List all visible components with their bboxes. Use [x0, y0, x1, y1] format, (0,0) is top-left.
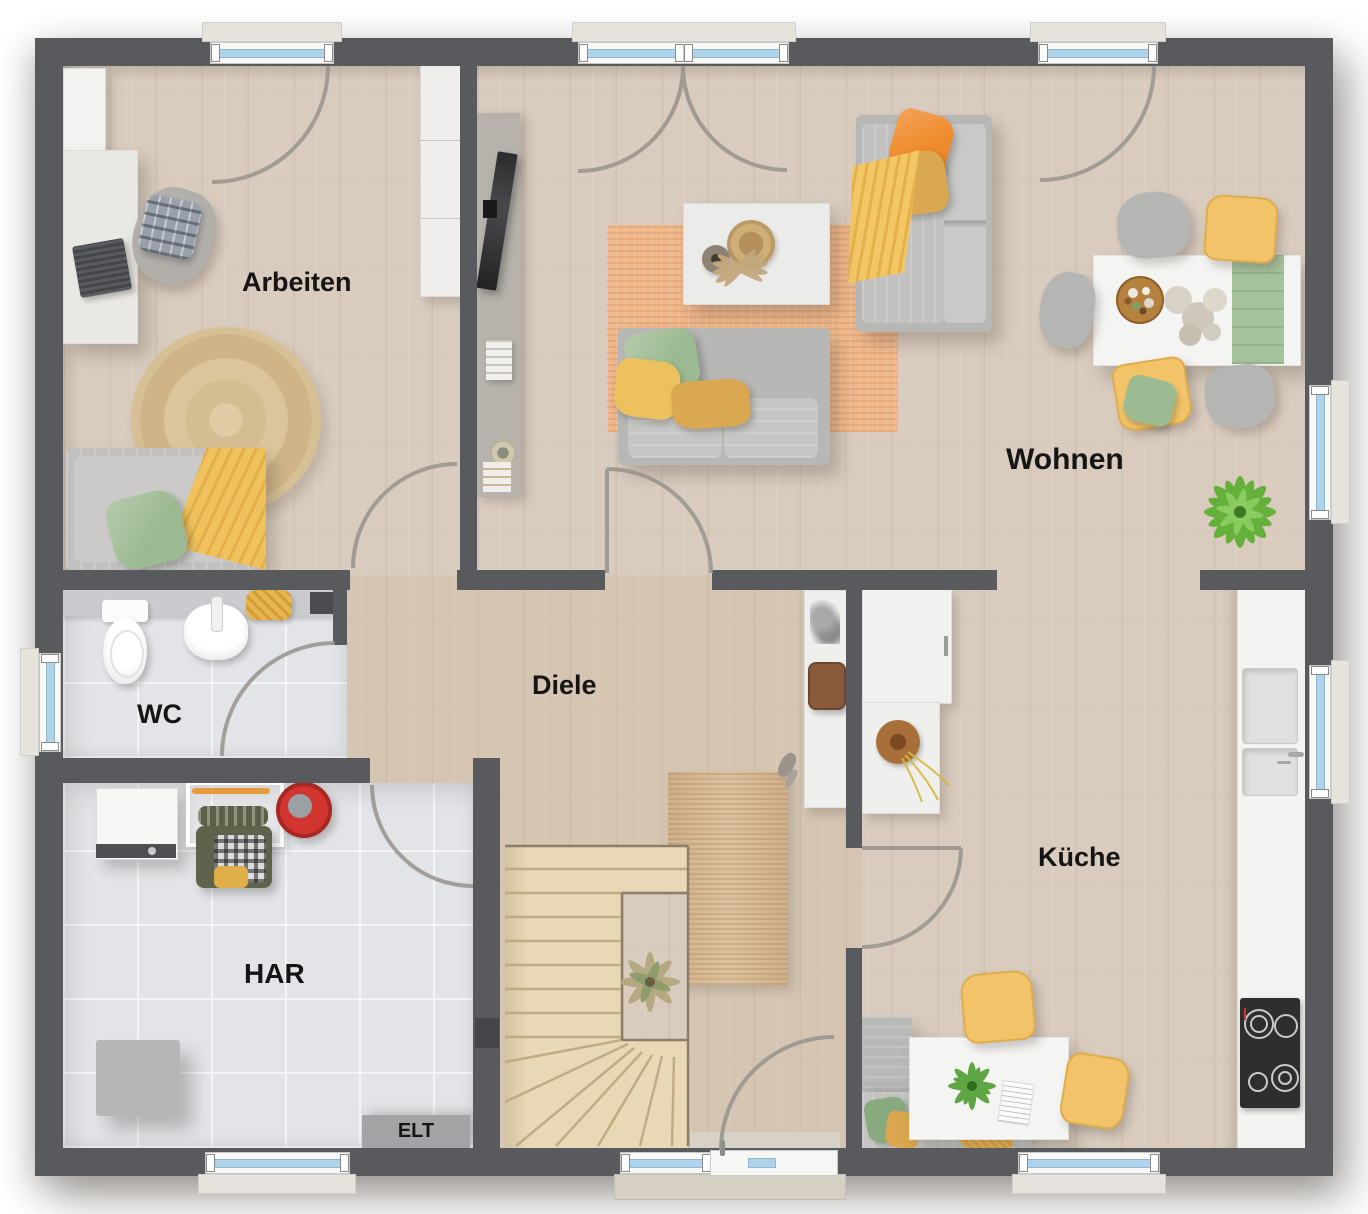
- entry-sidelight: [620, 1152, 712, 1174]
- wc-faucet: [211, 596, 223, 632]
- stair-opening-floor: [622, 893, 688, 1040]
- laptop: [72, 238, 132, 298]
- office-cabinet-north: [63, 68, 106, 154]
- window-arbeiten-top: [210, 42, 334, 64]
- tv-mount: [483, 200, 497, 218]
- handbag: [808, 662, 846, 710]
- room-label-kueche: Küche: [1038, 842, 1121, 873]
- terrace-door-wohnen: [1038, 42, 1158, 64]
- shelf-books: [486, 340, 512, 380]
- kitchen-chair-yellow-right: [1058, 1050, 1132, 1131]
- kitchen-sink-basin-1: [1242, 668, 1298, 744]
- french-door-right: [683, 42, 789, 64]
- wall-mid-stub-right: [1200, 570, 1305, 590]
- wall-har-east: [473, 758, 500, 1148]
- wc-towel: [246, 590, 292, 620]
- table-runner: [1232, 255, 1284, 364]
- room-label-diele: Diele: [532, 670, 597, 701]
- washing-machine-panel: [96, 844, 176, 858]
- wc-wall-niche: [310, 592, 333, 614]
- fruit-bowl: [876, 720, 920, 764]
- elt-label: ELT: [398, 1120, 434, 1143]
- front-door-handle: [720, 1140, 725, 1156]
- cooktop: [1240, 998, 1300, 1108]
- room-label-har: HAR: [244, 958, 305, 990]
- dining-chair-gray-top: [1115, 190, 1192, 261]
- french-door-left: [578, 42, 685, 64]
- wardrobe-divider-lines: [420, 140, 462, 141]
- sill-bottom-1: [198, 1174, 356, 1194]
- wall-diele-kueche: [846, 590, 862, 848]
- elt-box: ELT: [362, 1115, 470, 1148]
- room-label-wohnen: Wohnen: [1006, 443, 1124, 477]
- sill-left: [20, 648, 39, 756]
- kitchen-faucet: [1288, 752, 1304, 757]
- sideboard-deco: [810, 600, 840, 644]
- sill-right-2: [1331, 660, 1350, 804]
- kitchen-table: [909, 1037, 1069, 1140]
- entry-mat-inside: [690, 1132, 840, 1148]
- deco-plate: [727, 220, 775, 268]
- storage-cube: [96, 1040, 180, 1116]
- wall-arbeiten-wohnen: [460, 65, 477, 570]
- toilet-seat-line: [110, 630, 144, 678]
- drying-rack-rod-orange: [192, 788, 270, 794]
- mop-head: [288, 794, 312, 818]
- shelf-books-2: [483, 462, 511, 492]
- kitchen-chair-yellow-top: [959, 969, 1037, 1045]
- wardrobe-cabinet-east: [420, 65, 464, 297]
- wall-right: [1305, 38, 1333, 1176]
- room-label-arbeiten: Arbeiten: [242, 267, 352, 298]
- window-kueche-bottom: [1018, 1152, 1160, 1174]
- deco-vase-hole: [711, 254, 721, 264]
- wall-wc-south: [63, 758, 370, 783]
- window-kueche-right: [1309, 665, 1331, 799]
- dining-chair-yellow-top: [1203, 194, 1279, 265]
- pillow-ochre-sofa: [670, 377, 751, 430]
- sofa-right-cushions: [944, 124, 986, 323]
- kitchen-book: [997, 1080, 1035, 1126]
- wall-mid-a: [63, 570, 350, 590]
- entry-step: [614, 1174, 846, 1200]
- front-door-glass-inset: [748, 1158, 776, 1168]
- window-wohnen-right: [1309, 385, 1331, 520]
- kitchen-tall-cabinet: [862, 588, 952, 704]
- plaid-cushion: [137, 193, 204, 261]
- wardrobe-divider-lines-2: [420, 218, 462, 219]
- kitchen-cabinet-handle: [944, 636, 948, 656]
- sill-top-2: [572, 22, 796, 42]
- window-wc-left: [39, 653, 61, 752]
- wall-mid-c: [712, 570, 997, 590]
- floor-shadow-top: [63, 65, 1305, 81]
- wall-left: [35, 38, 63, 1176]
- drying-rack-clothes: [198, 806, 268, 826]
- wall-diele-kueche-2: [846, 948, 862, 1148]
- window-har-bottom: [205, 1152, 350, 1174]
- har-wall-niche: [475, 1018, 499, 1048]
- wall-wc-east: [333, 590, 347, 645]
- sill-top-1: [202, 22, 342, 42]
- laundry-cloth-yellow: [214, 866, 248, 888]
- sill-bottom-2: [1012, 1174, 1166, 1194]
- sill-top-3: [1030, 22, 1166, 42]
- wall-mid-b: [457, 570, 605, 590]
- floorplan-canvas: ELT: [0, 0, 1368, 1214]
- room-label-wc: WC: [137, 699, 182, 730]
- sill-right-1: [1331, 380, 1350, 524]
